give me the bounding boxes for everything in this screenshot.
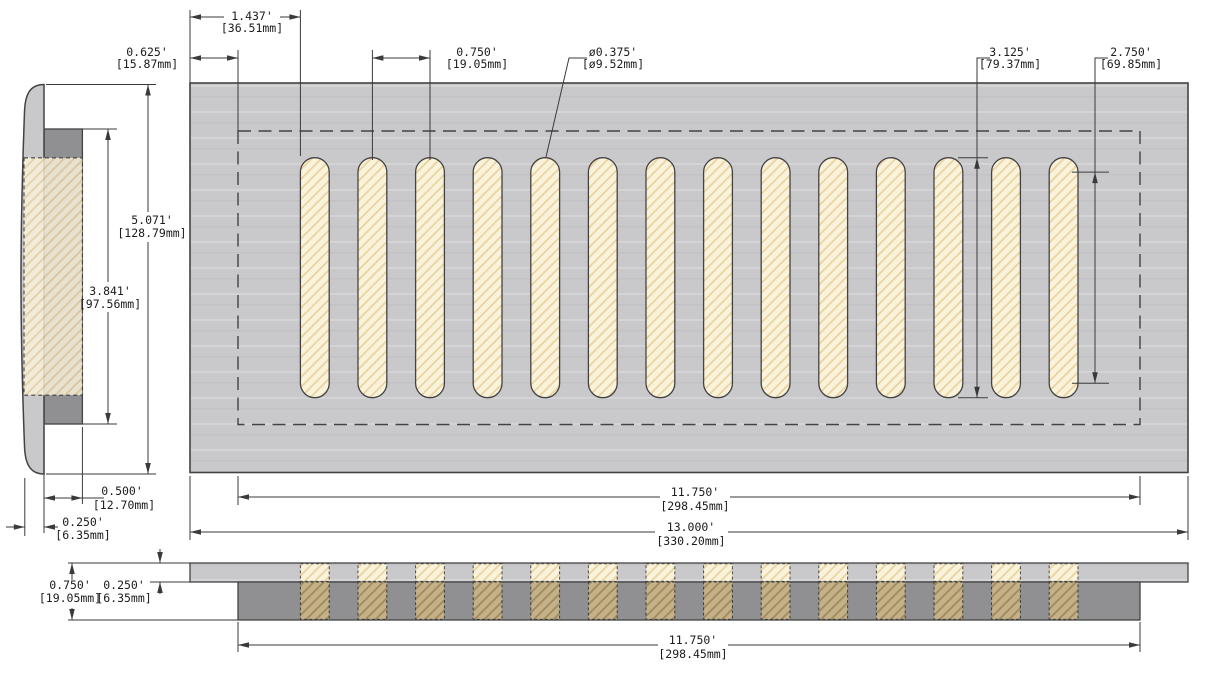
side-view [21, 85, 82, 475]
dim-section-duct-width-mm: [298.45mm] [658, 647, 727, 661]
arrowhead [157, 552, 163, 563]
technical-drawing: 1.437' [36.51mm] 0.625' [15.87mm] 0.750'… [0, 0, 1214, 673]
arrowhead [190, 55, 201, 61]
vent-slot [992, 158, 1021, 398]
vent-slot [704, 158, 733, 398]
section-slot-lower [416, 582, 445, 619]
vent-slot [300, 158, 329, 398]
dim-cover-height-mm: [128.79mm] [117, 226, 186, 240]
dim-margin-mm: [15.87mm] [116, 57, 178, 71]
arrowhead [1129, 494, 1140, 500]
section-slot-upper [1049, 564, 1078, 582]
dim-duct-height-mm: [97.56mm] [79, 297, 141, 311]
dim-section-duct-width-inches: 11.750' [669, 633, 717, 647]
vent-cover-plate [190, 83, 1188, 473]
arrowhead [14, 524, 25, 530]
dim-section-plate-mm: [6.35mm] [96, 591, 151, 605]
section-slot-upper [646, 564, 675, 582]
arrowhead [69, 609, 75, 620]
vent-slot [473, 158, 502, 398]
arrowhead [419, 55, 430, 61]
section-view [190, 563, 1188, 620]
top-view [190, 83, 1188, 473]
section-slot-upper [416, 564, 445, 582]
dim-slot-offset-mm: [36.51mm] [221, 21, 283, 35]
vent-slot [588, 158, 617, 398]
dim-duct-width-mm: [298.45mm] [660, 499, 729, 513]
dim-slot-width-mm: [ø9.52mm] [582, 57, 644, 71]
arrowhead [71, 495, 82, 501]
section-slot-upper [358, 564, 387, 582]
arrowhead [238, 494, 249, 500]
vent-slot [876, 158, 905, 398]
vent-slot [416, 158, 445, 398]
arrowhead [44, 524, 55, 530]
arrowhead [227, 55, 238, 61]
section-slot-lower [358, 582, 387, 619]
section-slot-lower [588, 582, 617, 619]
dim-duct-height-inches: 3.841' [89, 284, 131, 298]
vent-slot [761, 158, 790, 398]
duct-opening-side [24, 158, 82, 395]
cover-plate-section [190, 563, 1188, 582]
arrowhead [145, 85, 151, 96]
section-slot-upper [704, 564, 733, 582]
arrowhead [145, 463, 151, 474]
dim-duct-width-inches: 11.750' [671, 485, 719, 499]
vent-slot [819, 158, 848, 398]
vent-slot [1049, 158, 1078, 398]
vent-slot [934, 158, 963, 398]
vent-slot [358, 158, 387, 398]
arrowhead [157, 582, 163, 593]
dim-section-plate-thickness: 0.250' [6.35mm] [96, 549, 190, 605]
section-slot-lower [300, 582, 329, 619]
section-slot-lower [531, 582, 560, 619]
dim-flange-offset-mm: [6.35mm] [55, 528, 110, 542]
arrowhead [105, 129, 111, 140]
arrowhead [105, 413, 111, 424]
section-slot-lower [761, 582, 790, 619]
dim-slot-straight-mm: [69.85mm] [1100, 57, 1162, 71]
section-slot-lower [1049, 582, 1078, 619]
section-slot-upper [876, 564, 905, 582]
vent-slot [531, 158, 560, 398]
section-slot-upper [531, 564, 560, 582]
dim-duct-height: 3.841' [97.56mm] [79, 129, 141, 424]
dim-duct-depth-inches: 0.500' [101, 484, 143, 498]
dim-slot-pitch-mm: [19.05mm] [446, 57, 508, 71]
section-slot-lower [473, 582, 502, 619]
section-slot-upper [588, 564, 617, 582]
vent-slot [646, 158, 675, 398]
section-slot-lower [934, 582, 963, 619]
dim-duct-width: 11.750' [298.45mm] [238, 476, 1140, 513]
section-slot-upper [300, 564, 329, 582]
arrowhead [1129, 642, 1140, 648]
arrowhead [238, 642, 249, 648]
dim-section-height-mm: [19.05mm] [39, 591, 101, 605]
section-slot-lower [704, 582, 733, 619]
section-slot-lower [646, 582, 675, 619]
section-slot-upper [473, 564, 502, 582]
dim-section-plate-inches: 0.250' [103, 578, 145, 592]
section-slot-upper [992, 564, 1021, 582]
drawing-canvas: 1.437' [36.51mm] 0.625' [15.87mm] 0.750'… [0, 0, 1214, 673]
dim-slot-length-mm: [79.37mm] [979, 57, 1041, 71]
arrowhead [69, 563, 75, 574]
dim-cover-width-inches: 13.000' [667, 520, 715, 534]
arrowhead [289, 14, 300, 20]
section-slot-lower [876, 582, 905, 619]
dim-section-duct-width: 11.750' [298.45mm] [238, 622, 1140, 661]
arrowhead [44, 495, 55, 501]
section-slot-lower [819, 582, 848, 619]
dim-cover-height-inches: 5.071' [131, 213, 173, 227]
section-slot-lower [992, 582, 1021, 619]
dim-cover-width-mm: [330.20mm] [656, 534, 725, 548]
dim-duct-depth-mm: [12.70mm] [93, 498, 155, 512]
dim-section-height-inches: 0.750' [49, 578, 91, 592]
arrowhead [372, 55, 383, 61]
arrowhead [1177, 529, 1188, 535]
arrowhead [190, 529, 201, 535]
dim-flange-offset-inches: 0.250' [62, 515, 104, 529]
arrowhead [190, 14, 201, 20]
section-slot-upper [761, 564, 790, 582]
section-slot-upper [934, 564, 963, 582]
section-slot-upper [819, 564, 848, 582]
